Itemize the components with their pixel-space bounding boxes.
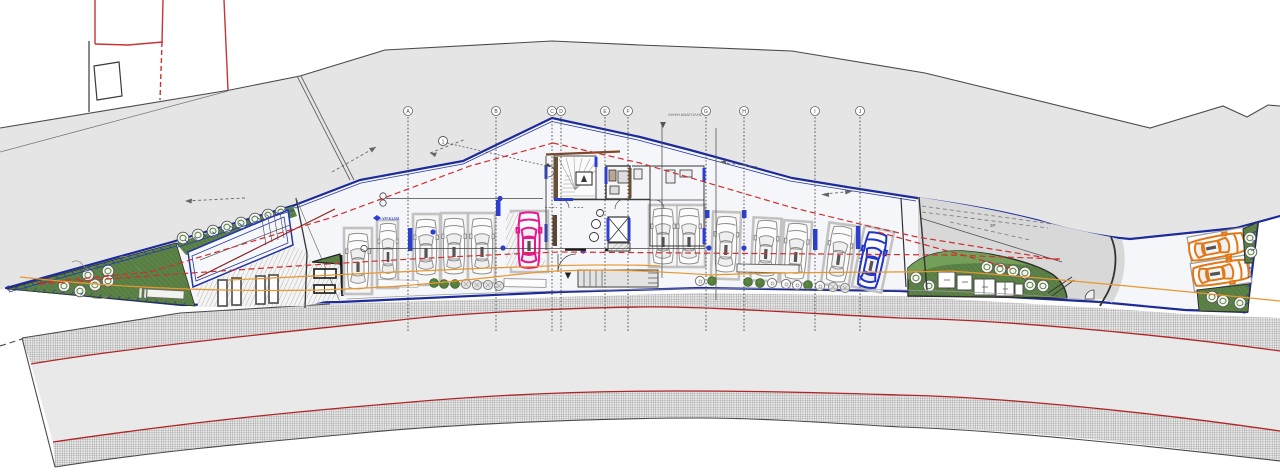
svg-text:YP.KLIM: YP.KLIM (382, 216, 399, 221)
svg-text:C: C (550, 109, 554, 115)
svg-text:1: 1 (442, 140, 445, 146)
svg-text:H: H (742, 109, 746, 115)
svg-text:I: I (814, 109, 815, 115)
svg-text:F: F (626, 109, 629, 115)
svg-text:3P: 3P (990, 223, 996, 228)
svg-text:G: G (704, 109, 708, 115)
svg-text:D: D (559, 109, 563, 115)
svg-text:ΛΗΨΗ ΑΝΑΤΟΛΗΣ: ΛΗΨΗ ΑΝΑΤΟΛΗΣ (668, 112, 703, 117)
